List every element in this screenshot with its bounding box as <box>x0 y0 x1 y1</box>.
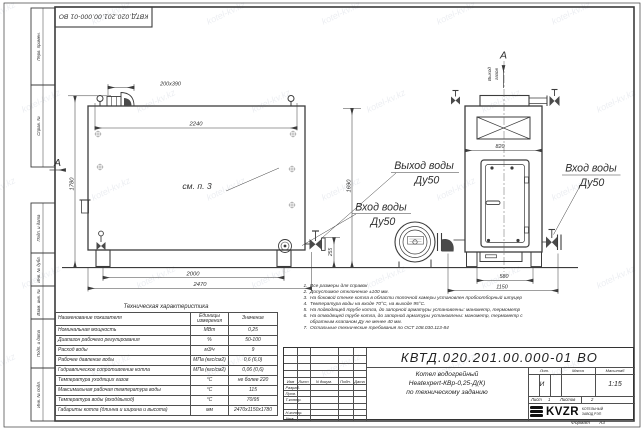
logo-text: KVZR <box>546 406 579 418</box>
table-row: Расход водым3/ч9 <box>56 346 278 356</box>
water-out-label: Выход воды <box>394 160 454 172</box>
frame-col-perv-primen: Перв. примен. <box>36 32 41 61</box>
tb-col-podp: Подп. <box>338 379 353 384</box>
col-header: Значение <box>229 313 278 326</box>
tb-scale-value: 1:15 <box>595 381 635 388</box>
water-inlet-valve-icon <box>542 230 561 251</box>
section-a-left: А <box>53 157 61 169</box>
dim-side-width: 820 <box>496 144 505 150</box>
table-row: Рабочее давление водыМПа (кгс/см2)0,6 (6… <box>56 356 278 366</box>
furnace-door-icon <box>481 160 529 247</box>
product-name-line: Heatexpert-КВр-0,25-Д(К) <box>366 379 528 388</box>
dim-chimney: 200х390 <box>159 82 181 88</box>
frame-col-vzam-inv: Взам. инв. № <box>36 289 41 316</box>
top-hatch-icon <box>477 117 530 139</box>
water-in-front-label: Вход воды <box>355 202 407 214</box>
datum-target-icon <box>95 131 297 209</box>
product-name-line: Котел водогрейный <box>366 370 528 379</box>
fan-blower-icon <box>395 222 435 268</box>
tb-row-prov: Пров. <box>286 391 297 396</box>
list-item: 6.На отводящей трубе котла, до запорной … <box>301 314 533 326</box>
see-item-label: см. п. 3 <box>182 181 211 191</box>
table-row: Гидравлическое сопротивление котлаМПа (к… <box>56 366 278 376</box>
table-row: Температура воды (вход/выход)°С70/95 <box>56 396 278 406</box>
gas-out-label-1: Выход <box>487 67 492 81</box>
tb-row-razrab: Разраб. <box>286 385 300 390</box>
tb-lit-value: И <box>533 381 551 388</box>
dimensions: 200х390 2240 1780 1690 255 2000 2470 82 <box>68 82 558 295</box>
dim-top-width: 2240 <box>189 122 204 128</box>
kvzr-logo: KVZR КОТЕЛЬНЫЙ ЗАВОД РЭП <box>530 404 633 419</box>
tb-row-nkontr: Н.контр. <box>286 410 303 415</box>
water-out-dn: Ду50 <box>414 175 440 187</box>
notes-list: 1.Все размеры для справок 2.Допустимое о… <box>301 284 533 332</box>
table-row: Максимальная рабочая температура воды°С1… <box>56 386 278 396</box>
tb-product-name: Котел водогрейный Heatexpert-КВр-0,25-Д(… <box>366 370 528 397</box>
col-header: Наименование показателя <box>56 313 191 326</box>
tb-row-utv: Утв. <box>286 416 295 421</box>
format-note: ФорматА3 <box>571 421 605 426</box>
tech-table-title: Техническая характеристика <box>55 304 277 310</box>
format-value: А3 <box>599 421 605 426</box>
frame-col-podp-data-1: Подп. и дата <box>36 214 41 242</box>
title-block: Изм Лист N докум. Подп. Дата Разраб. Про… <box>283 347 634 420</box>
tb-doc-number: КВТД.020.201.00.000-01 ВО <box>366 348 633 367</box>
water-in-side-dn: Ду50 <box>579 177 605 189</box>
chimney-stub-icon <box>107 93 134 107</box>
air-valve-icon <box>451 91 460 105</box>
stamp-doc-number: КВТД.020.201.00.000-01 ВО <box>59 12 149 19</box>
table-row: Габариты котла (длинна и ширина и высота… <box>56 406 278 416</box>
damper-valve-icon <box>550 90 560 107</box>
tb-sheet-label: Лист <box>531 397 542 402</box>
list-item: 7.Остальные технические требования по ОС… <box>301 326 533 332</box>
tech-table: Техническая характеристика Наименование … <box>55 304 277 416</box>
tb-lit-label: Лит. <box>528 368 561 373</box>
tb-col-docnum: N докум. <box>310 379 338 384</box>
tb-mass-label: Масса <box>561 368 595 373</box>
door-handle-icon <box>486 201 500 205</box>
boiler-side-view <box>438 61 562 272</box>
tb-sheets-label: Листов <box>560 397 575 402</box>
dim-inlet-height: 255 <box>328 248 334 258</box>
frame-col-podp-data-2: Подп. и дата <box>36 329 41 357</box>
frame-col-inv-dubl: Инв. № дубл. <box>36 256 41 282</box>
dim-total-length: 2470 <box>193 282 208 288</box>
frame-col-sprav-no: Справ. № <box>36 116 41 136</box>
dim-mid-height: 1690 <box>346 179 352 193</box>
dim-height: 1780 <box>69 177 75 191</box>
format-label: Формат <box>571 421 590 426</box>
tb-scale-label: Масштаб <box>595 368 635 373</box>
col-header: Единицы измерения <box>191 313 229 326</box>
table-row: Номинальная мощностьМВт0,25 <box>56 326 278 336</box>
product-name-line: по техническому заданию <box>366 388 528 397</box>
gas-out-label-2: газов <box>494 67 499 79</box>
callout-labels: А см. п. 3 Выход воды Ду50 Вход воды Ду5… <box>50 50 621 246</box>
water-in-side-label: Вход воды <box>565 163 617 175</box>
water-outlet-pipe-icon <box>438 233 466 252</box>
table-row: Температура уходящих газов°Сне более 220 <box>56 376 278 386</box>
dim-side-legs-span: 580 <box>500 274 509 280</box>
table-row: Диапазон рабочего регулирования%50-100 <box>56 336 278 346</box>
tb-sheets-value: 2 <box>591 397 593 402</box>
tb-col-data: Дата <box>353 379 366 384</box>
section-a-right: А <box>499 50 507 62</box>
tb-row-tkontr: Т.контр. <box>286 397 302 402</box>
dim-legs-span: 2000 <box>186 271 201 277</box>
logo-bars-icon <box>530 406 543 417</box>
boiler-front-view <box>62 93 578 268</box>
drawing-sheet: kotel-kv.kzkotel-kv.kzkotel-kv.kzkotel-k… <box>0 0 644 430</box>
drain-valve-icon <box>97 231 106 250</box>
tb-sheet-value: 1 <box>548 397 550 402</box>
tb-col-izm: Изм <box>284 379 297 384</box>
water-in-front-dn: Ду50 <box>370 216 396 228</box>
company-name: КОТЕЛЬНЫЙ ЗАВОД РЭП <box>582 407 603 415</box>
frame-col-inv-podl: Инв. № подл. <box>36 381 41 408</box>
tb-col-list: Лист <box>297 379 310 384</box>
tech-table-header: Наименование показателя Единицы измерени… <box>56 313 278 326</box>
